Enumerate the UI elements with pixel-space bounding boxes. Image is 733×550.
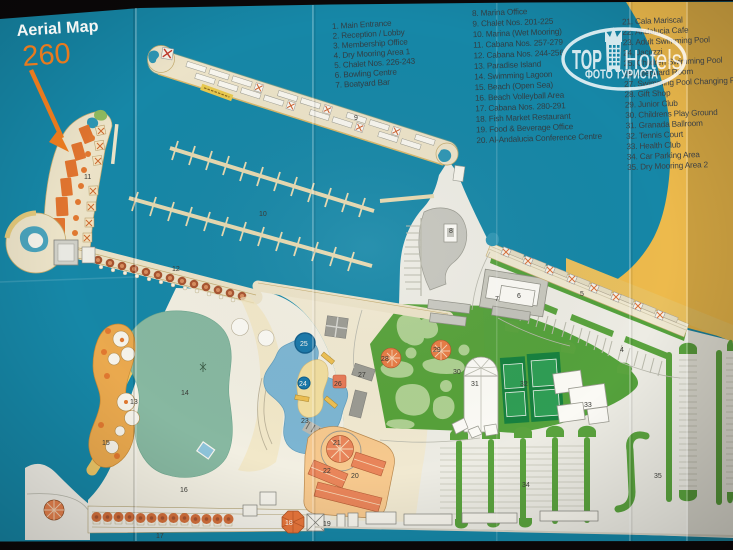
svg-text:19: 19 [323, 521, 331, 528]
svg-text:27: 27 [358, 372, 366, 379]
svg-text:17: 17 [156, 533, 164, 540]
svg-text:25: 25 [300, 341, 308, 348]
svg-text:34: 34 [522, 482, 530, 489]
svg-text:6: 6 [517, 293, 521, 300]
svg-text:35: 35 [654, 473, 662, 480]
svg-text:14: 14 [181, 390, 189, 397]
svg-text:29. Junior Club: 29. Junior Club [625, 99, 679, 110]
svg-text:16: 16 [180, 487, 188, 494]
svg-text:7: 7 [495, 296, 499, 303]
svg-text:18: 18 [285, 520, 293, 527]
svg-text:24: 24 [299, 381, 307, 388]
svg-text:22: 22 [323, 468, 331, 475]
svg-text:260: 260 [21, 38, 72, 73]
svg-text:29: 29 [433, 347, 441, 354]
svg-text:26: 26 [334, 381, 342, 388]
svg-text:11: 11 [84, 174, 91, 181]
svg-text:4: 4 [620, 347, 624, 354]
svg-text:12: 12 [172, 266, 180, 273]
svg-text:ФОТО ТУРИСТА: ФОТО ТУРИСТА [585, 68, 658, 82]
svg-text:8: 8 [449, 228, 453, 235]
svg-text:30: 30 [453, 369, 461, 376]
svg-text:33: 33 [584, 402, 592, 409]
svg-text:21: 21 [333, 440, 341, 447]
svg-text:15: 15 [102, 440, 110, 447]
svg-text:23: 23 [301, 418, 309, 425]
svg-text:31: 31 [471, 381, 479, 388]
svg-text:32: 32 [520, 381, 528, 388]
svg-text:33. Health Club: 33. Health Club [626, 140, 681, 151]
svg-text:5: 5 [580, 291, 584, 298]
svg-text:9: 9 [354, 115, 358, 122]
svg-text:10: 10 [259, 211, 267, 218]
svg-text:20: 20 [351, 473, 359, 480]
svg-text:28: 28 [381, 356, 389, 363]
svg-text:13: 13 [130, 399, 138, 406]
